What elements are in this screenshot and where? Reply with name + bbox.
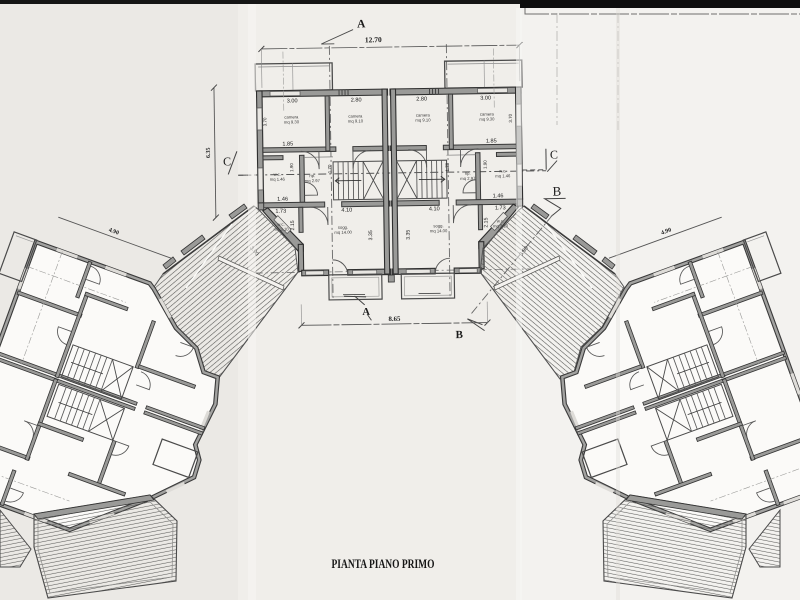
svg-text:1.46: 1.46 xyxy=(493,193,504,199)
svg-text:2.15: 2.15 xyxy=(483,217,489,227)
svg-text:C: C xyxy=(223,154,231,168)
svg-text:A: A xyxy=(357,18,366,30)
svg-text:mq 14.00: mq 14.00 xyxy=(430,228,448,233)
svg-text:2.80: 2.80 xyxy=(416,96,427,102)
svg-text:mq 1.46: mq 1.46 xyxy=(270,177,286,182)
svg-text:2.80: 2.80 xyxy=(351,97,362,103)
svg-text:mq 9.30: mq 9.30 xyxy=(284,119,300,124)
svg-text:3.00: 3.00 xyxy=(287,98,298,104)
svg-text:1.46: 1.46 xyxy=(277,197,288,203)
svg-text:B: B xyxy=(552,183,561,198)
svg-text:PIANTA PIANO PRIMO: PIANTA PIANO PRIMO xyxy=(332,557,435,571)
svg-text:1.73: 1.73 xyxy=(495,205,506,211)
svg-text:mq 14.00: mq 14.00 xyxy=(334,230,352,235)
svg-text:mq 2.97: mq 2.97 xyxy=(305,178,321,183)
svg-text:C: C xyxy=(550,148,558,162)
svg-text:1.70: 1.70 xyxy=(445,162,450,171)
svg-text:3.35: 3.35 xyxy=(406,230,412,240)
svg-text:A: A xyxy=(362,307,370,318)
svg-text:1.85: 1.85 xyxy=(486,138,497,144)
svg-text:mq 9.10: mq 9.10 xyxy=(348,118,364,123)
svg-text:6.35: 6.35 xyxy=(206,147,212,158)
svg-text:3.35: 3.35 xyxy=(368,230,374,240)
svg-text:1.73: 1.73 xyxy=(275,209,286,215)
svg-text:3.70: 3.70 xyxy=(262,117,267,126)
svg-text:4.10: 4.10 xyxy=(341,208,352,214)
svg-text:12.70: 12.70 xyxy=(365,35,382,44)
svg-text:mq 9.30: mq 9.30 xyxy=(479,116,495,121)
svg-text:1.70: 1.70 xyxy=(327,164,332,173)
svg-text:1.90: 1.90 xyxy=(289,163,294,172)
svg-text:8.65: 8.65 xyxy=(388,316,401,323)
svg-text:1.90: 1.90 xyxy=(483,160,488,169)
svg-text:1.85: 1.85 xyxy=(282,141,293,147)
svg-text:B: B xyxy=(456,329,464,341)
svg-text:3.00: 3.00 xyxy=(480,96,491,102)
svg-text:3.70: 3.70 xyxy=(508,113,513,122)
svg-text:mq 2.97: mq 2.97 xyxy=(460,176,476,181)
svg-text:4.10: 4.10 xyxy=(429,206,440,212)
svg-text:mq 9.10: mq 9.10 xyxy=(415,117,431,122)
svg-text:2.15: 2.15 xyxy=(290,220,296,230)
svg-text:mq 1.46: mq 1.46 xyxy=(495,173,511,178)
